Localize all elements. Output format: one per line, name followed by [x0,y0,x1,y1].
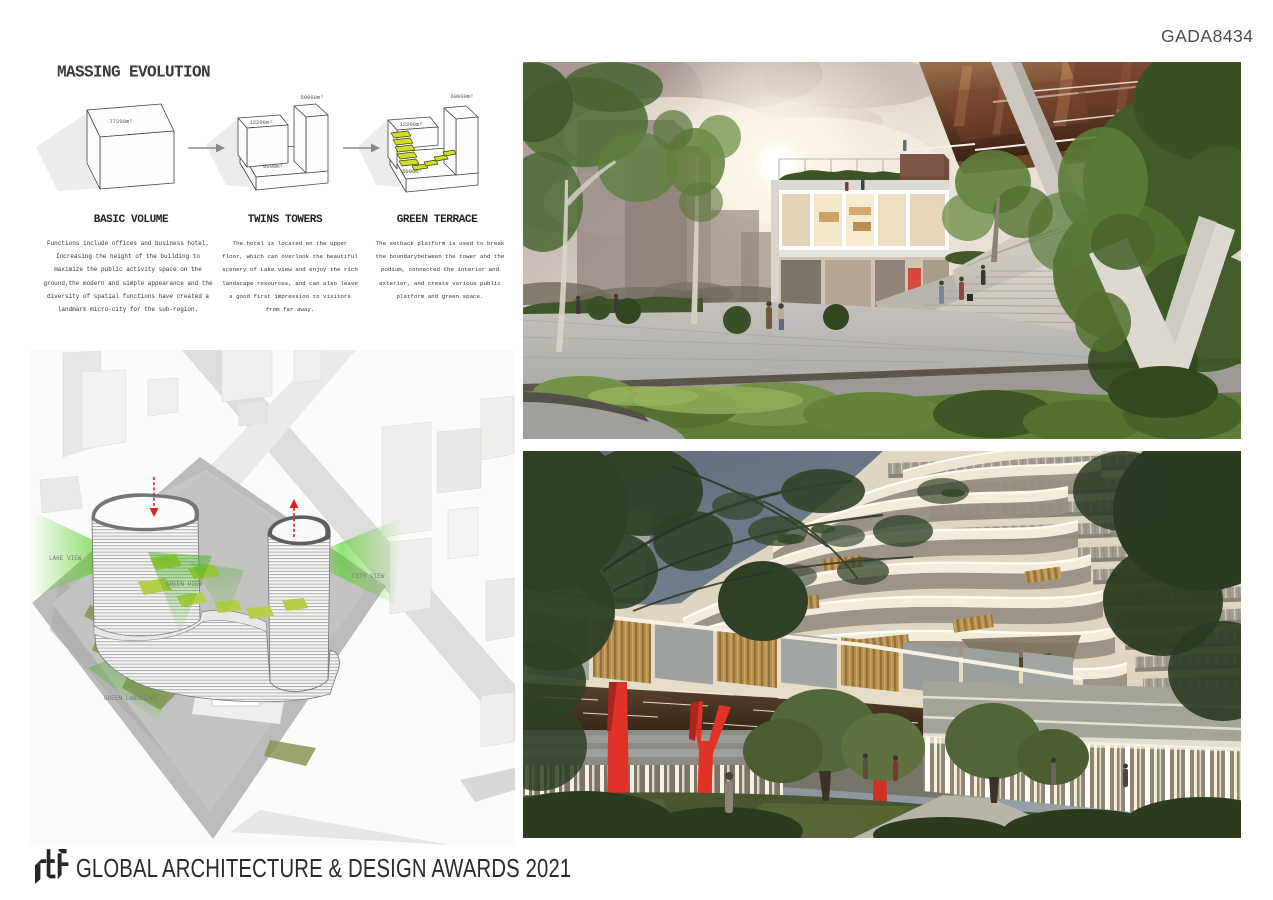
svg-text:12200m²: 12200m² [249,119,272,126]
svg-text:GREEN VIEW: GREEN VIEW [166,581,202,588]
svg-text:CITY VIEW: CITY VIEW [352,573,385,580]
svg-text:77200m²: 77200m² [109,118,132,125]
svg-text:6000m³: 6000m³ [263,163,283,170]
svg-text:LAKE VIEW: LAKE VIEW [49,555,82,562]
svg-text:12200m²: 12200m² [399,121,422,128]
svg-text:60000m²: 60000m² [450,93,473,100]
svg-text:5000m²: 5000m² [402,168,422,175]
svg-text:GREEN LANDSCAPE: GREEN LANDSCAPE [104,695,158,702]
svg-text:59000m²: 59000m² [300,94,323,101]
